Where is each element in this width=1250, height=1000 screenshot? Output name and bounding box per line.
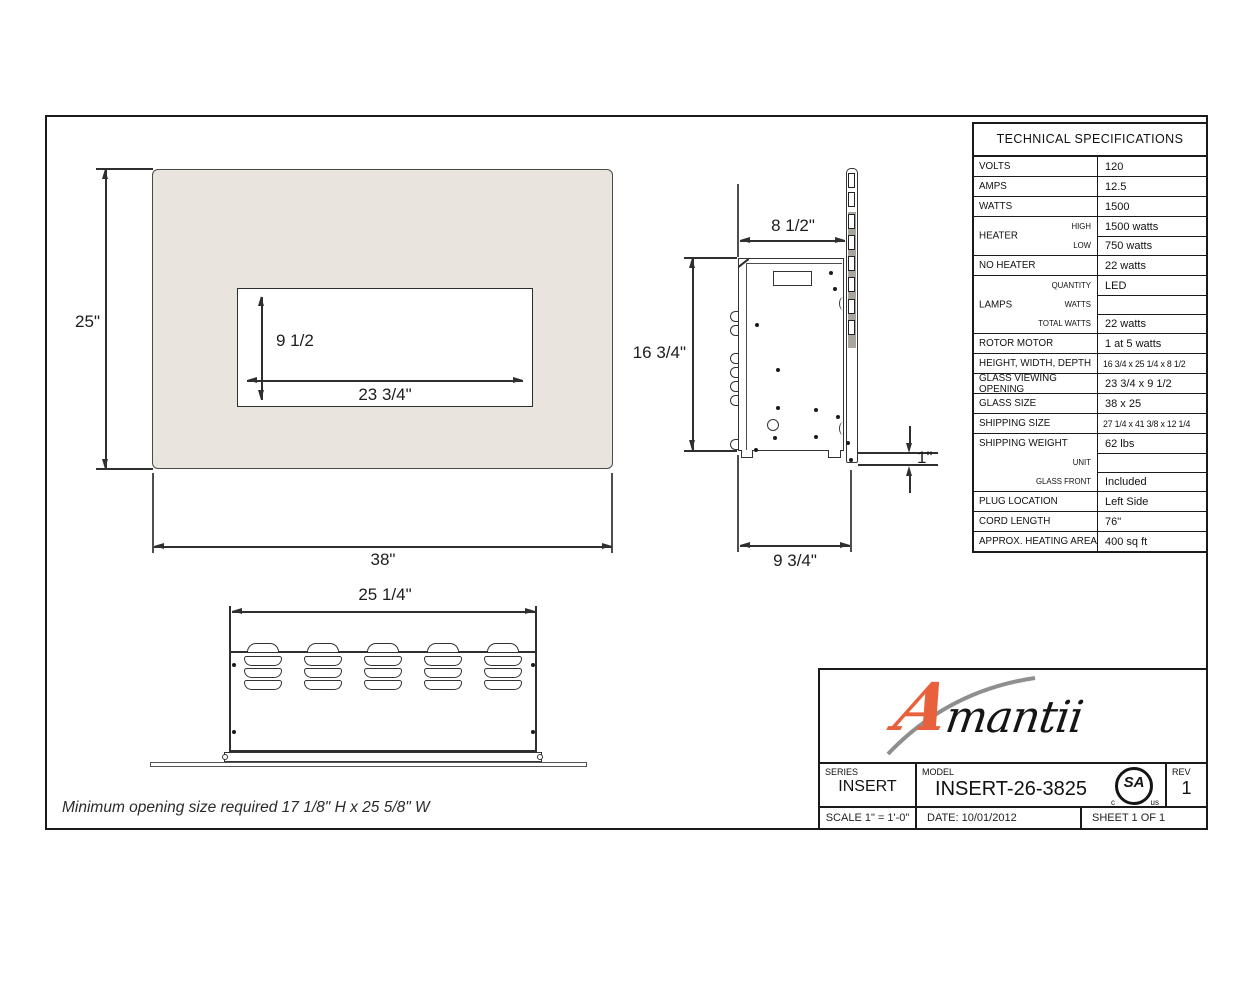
body-inner-line	[747, 263, 842, 264]
spec-row-label: CORD LENGTH	[974, 512, 1097, 531]
screw-dot	[776, 368, 780, 372]
spec-value: 400 sq ft	[1097, 532, 1206, 551]
louver-bump	[730, 439, 738, 450]
rear-louver-tab	[427, 643, 459, 652]
csa-monogram: SA	[1115, 774, 1153, 791]
model-label: MODEL	[922, 767, 954, 777]
spec-value	[1097, 295, 1206, 314]
arrowhead	[513, 377, 523, 383]
dim-line-flange	[909, 476, 911, 493]
spec-row-group: HEATERHIGH1500 wattsLOW750 watts	[974, 216, 1206, 255]
foot	[828, 450, 841, 458]
spec-row-label: GLASS SIZE	[974, 394, 1097, 413]
panel-vent-slot	[848, 173, 855, 188]
extension-line	[737, 184, 739, 257]
spec-row: NO HEATER22 watts	[974, 255, 1206, 275]
title-block-row-2: SCALE 1" = 1'-0" DATE: 10/01/2012 SHEET …	[820, 806, 1206, 828]
spec-sub-row: QUANTITYLED	[974, 276, 1206, 295]
louver-bump	[730, 353, 738, 364]
screw-dot	[814, 435, 818, 439]
spec-sub-label: UNIT	[974, 453, 1097, 472]
spec-row: WATTS1500	[974, 196, 1206, 216]
model-cell: MODEL INSERT-26-3825 SA c us	[915, 764, 1165, 806]
series-label: SERIES	[825, 767, 858, 777]
screw-dot	[531, 663, 535, 667]
spec-row-label: SHIPPING SIZE	[974, 414, 1097, 433]
minimum-opening-note: Minimum opening size required 17 1/8" H …	[62, 799, 430, 817]
spec-row: SHIPPING SIZE27 1/4 x 41 3/8 x 12 1/4	[974, 413, 1206, 433]
rear-louver-tab	[307, 643, 339, 652]
rear-louver-tab	[367, 643, 399, 652]
louver-bump	[730, 381, 738, 392]
arrowhead	[740, 542, 750, 548]
louver-bump	[730, 311, 738, 322]
title-block-row-1: SERIES INSERT MODEL INSERT-26-3825 SA c …	[820, 762, 1206, 806]
louver-bump	[730, 367, 738, 378]
extension-line	[737, 455, 739, 552]
dim-line-opening-height	[261, 297, 263, 400]
dim-line-side-height	[692, 259, 694, 450]
spec-row-label: AMPS	[974, 177, 1097, 196]
rear-side-line	[535, 606, 537, 763]
drawing-sheet: 9 1/2 23 3/4" 25" 38"	[0, 0, 1250, 1000]
spec-value	[1097, 453, 1206, 472]
rev-label: REV	[1172, 767, 1191, 777]
spec-row-label: ROTOR MOTOR	[974, 334, 1097, 353]
arrowhead	[740, 237, 750, 243]
arrowhead	[906, 466, 912, 476]
spec-value: 750 watts	[1097, 236, 1206, 255]
spec-row-label: HEATER	[979, 231, 1018, 242]
spec-value: 27 1/4 x 41 3/8 x 12 1/4	[1097, 414, 1206, 433]
dim-label-side-top: 8 1/2"	[743, 216, 843, 236]
rear-louver-slat	[364, 668, 402, 678]
panel-vent-slot	[848, 214, 855, 229]
rear-louver-slat	[484, 668, 522, 678]
arrowhead	[602, 543, 612, 549]
dim-line-opening-width	[247, 380, 523, 382]
extension-line	[684, 450, 737, 452]
spec-row-label: SHIPPING WEIGHT	[979, 434, 1068, 453]
panel-vent-slot	[848, 277, 855, 292]
screw-dot	[754, 448, 758, 452]
screw-dot	[829, 271, 833, 275]
spec-sub-row: GLASS FRONTIncluded	[974, 472, 1206, 491]
spec-value: 23 3/4 x 9 1/2	[1097, 374, 1206, 393]
amantii-logo: A mantii	[820, 670, 1208, 762]
spec-sub-label: QUANTITY	[974, 276, 1097, 295]
rear-louver-slat	[364, 680, 402, 690]
title-block: A mantii SERIES INSERT MODEL INSERT-26-3…	[818, 668, 1208, 830]
rear-louver-tab	[247, 643, 279, 652]
bolt	[222, 754, 228, 760]
screw-dot	[773, 436, 777, 440]
spec-row: AMPS12.5	[974, 176, 1206, 196]
body-inner-line	[746, 263, 747, 450]
spec-row: GLASS SIZE38 x 25	[974, 393, 1206, 413]
spec-row-group: LAMPSQUANTITYLEDWATTSTOTAL WATTS22 watts	[974, 275, 1206, 333]
foot	[741, 450, 753, 458]
spec-value: 16 3/4 x 25 1/4 x 8 1/2	[1097, 354, 1206, 373]
rear-louver-slat	[424, 680, 462, 690]
dim-line-rear-width	[232, 611, 535, 613]
spec-row-label: GLASS VIEWING OPENING	[974, 374, 1097, 393]
screw-dot	[776, 406, 780, 410]
spec-row: PLUG LOCATIONLeft Side	[974, 491, 1206, 511]
control-box	[773, 271, 812, 286]
arrowhead	[835, 237, 845, 243]
spec-value: 12.5	[1097, 177, 1206, 196]
spec-value: LED	[1097, 276, 1206, 295]
spec-row-label: APPROX. HEATING AREA	[974, 532, 1097, 551]
spec-row: APPROX. HEATING AREA400 sq ft	[974, 531, 1206, 551]
arrowhead	[525, 608, 535, 614]
spec-row-label: PLUG LOCATION	[974, 492, 1097, 511]
spec-row: CORD LENGTH76"	[974, 511, 1206, 531]
dim-label-rear-width: 25 1/4"	[330, 585, 440, 605]
screw-dot	[531, 730, 535, 734]
rear-louver-slat	[304, 668, 342, 678]
rear-louver-slat	[364, 656, 402, 666]
spec-value: 120	[1097, 157, 1206, 176]
spec-row-label: WATTS	[974, 197, 1097, 216]
grommet-hole	[767, 419, 779, 431]
sheet-cell: SHEET 1 OF 1	[1080, 808, 1206, 828]
logo-letters-rest: mantii	[943, 694, 1086, 742]
panel-hook	[839, 422, 847, 435]
arrowhead	[232, 608, 242, 614]
side-view-body	[738, 258, 844, 451]
panel-vent-slot	[848, 256, 855, 271]
extension-line	[152, 473, 154, 553]
dim-line-front-height	[105, 170, 107, 468]
spec-row: GLASS VIEWING OPENING23 3/4 x 9 1/2	[974, 373, 1206, 393]
spec-value: 1 at 5 watts	[1097, 334, 1206, 353]
spec-row-label: NO HEATER	[974, 256, 1097, 275]
spec-sub-label: GLASS FRONT	[974, 472, 1097, 491]
series-value: INSERT	[820, 778, 915, 796]
spec-table: TECHNICAL SPECIFICATIONS VOLTS120AMPS12.…	[972, 122, 1208, 553]
spec-row: VOLTS120	[974, 157, 1206, 176]
arrowhead	[840, 542, 850, 548]
spec-value: 1500	[1097, 197, 1206, 216]
spec-value: 38 x 25	[1097, 394, 1206, 413]
spec-value: Left Side	[1097, 492, 1206, 511]
dim-label-opening-width: 23 3/4"	[330, 385, 440, 405]
screw-dot	[833, 287, 837, 291]
screw-dot	[755, 323, 759, 327]
arrowhead	[102, 459, 108, 469]
spec-value: 1500 watts	[1097, 217, 1206, 236]
series-cell: SERIES INSERT	[820, 764, 915, 806]
scale-cell: SCALE 1" = 1'-0"	[820, 808, 915, 828]
spec-value: 22 watts	[1097, 314, 1206, 333]
dim-label-front-width: 38"	[333, 550, 433, 570]
screw-dot	[836, 415, 840, 419]
arrowhead	[689, 440, 695, 450]
rear-louver-slat	[244, 680, 282, 690]
rear-louver-slat	[304, 680, 342, 690]
rear-side-line	[229, 606, 231, 763]
rear-louver-slat	[244, 656, 282, 666]
rev-cell: REV 1	[1165, 764, 1206, 806]
screw-dot	[232, 663, 236, 667]
dim-line-side-top	[740, 240, 845, 242]
rear-louver-tab	[487, 643, 519, 652]
csa-logo: SA c us	[1115, 767, 1153, 805]
rear-base-bar	[224, 752, 542, 762]
spec-value: 22 watts	[1097, 256, 1206, 275]
spec-value: 62 lbs	[1097, 434, 1206, 453]
rear-louver-slat	[484, 680, 522, 690]
arrowhead	[258, 390, 264, 400]
spec-sub-label: TOTAL WATTS	[974, 314, 1097, 333]
spec-row-label: VOLTS	[974, 157, 1097, 176]
louver-bump	[730, 325, 738, 336]
spec-value: 76"	[1097, 512, 1206, 531]
spec-sub-row: TOTAL WATTS22 watts	[974, 314, 1206, 333]
spec-row-group: SHIPPING WEIGHT62 lbsUNITGLASS FRONTIncl…	[974, 433, 1206, 491]
dim-label-front-height: 25"	[58, 312, 100, 332]
panel-vent-slot	[848, 320, 855, 335]
louver-bump	[730, 395, 738, 406]
dim-line-flange	[909, 426, 911, 443]
arrowhead	[102, 169, 108, 179]
panel-vent-slot	[848, 235, 855, 250]
screw-dot	[846, 441, 850, 445]
model-value: INSERT-26-3825	[917, 778, 1105, 801]
spec-row: HEIGHT, WIDTH, DEPTH16 3/4 x 25 1/4 x 8 …	[974, 353, 1206, 373]
spec-table-title: TECHNICAL SPECIFICATIONS	[974, 124, 1206, 157]
bolt	[537, 754, 543, 760]
dim-label-side-height: 16 3/4"	[620, 343, 686, 363]
rear-louver-slat	[304, 656, 342, 666]
rev-value: 1	[1167, 778, 1206, 799]
rear-louver-slat	[244, 668, 282, 678]
rear-louver-slat	[484, 656, 522, 666]
panel-hook	[839, 297, 847, 310]
dim-line-front-width	[154, 546, 612, 548]
rear-louver-slat	[424, 668, 462, 678]
extension-line	[611, 473, 613, 553]
arrowhead	[689, 258, 695, 268]
arrowhead	[258, 296, 264, 306]
rear-louver-slat	[424, 656, 462, 666]
arrowhead	[154, 543, 164, 549]
spec-row-label: HEIGHT, WIDTH, DEPTH	[974, 354, 1097, 373]
spec-value: Included	[1097, 472, 1206, 491]
dim-label-flange: 1"	[917, 448, 933, 468]
rear-base-plate	[150, 762, 587, 767]
arrowhead	[247, 377, 257, 383]
date-cell: DATE: 10/01/2012	[915, 808, 1080, 828]
dim-label-side-bottom: 9 3/4"	[745, 551, 845, 571]
screw-dot	[232, 730, 236, 734]
spec-table-rows: VOLTS120AMPS12.5WATTS1500HEATERHIGH1500 …	[974, 157, 1206, 551]
spec-row: ROTOR MOTOR1 at 5 watts	[974, 333, 1206, 353]
panel-vent-slot	[848, 299, 855, 314]
spec-row-label: LAMPS	[979, 299, 1012, 310]
panel-vent-slot	[848, 192, 855, 207]
dim-label-opening-height: 9 1/2	[276, 331, 314, 351]
spec-sub-row: UNIT	[974, 453, 1206, 472]
arrowhead	[906, 443, 912, 453]
screw-dot	[814, 408, 818, 412]
screw-dot	[849, 458, 853, 462]
extension-line	[850, 470, 852, 552]
dim-line-side-bottom	[740, 545, 850, 547]
